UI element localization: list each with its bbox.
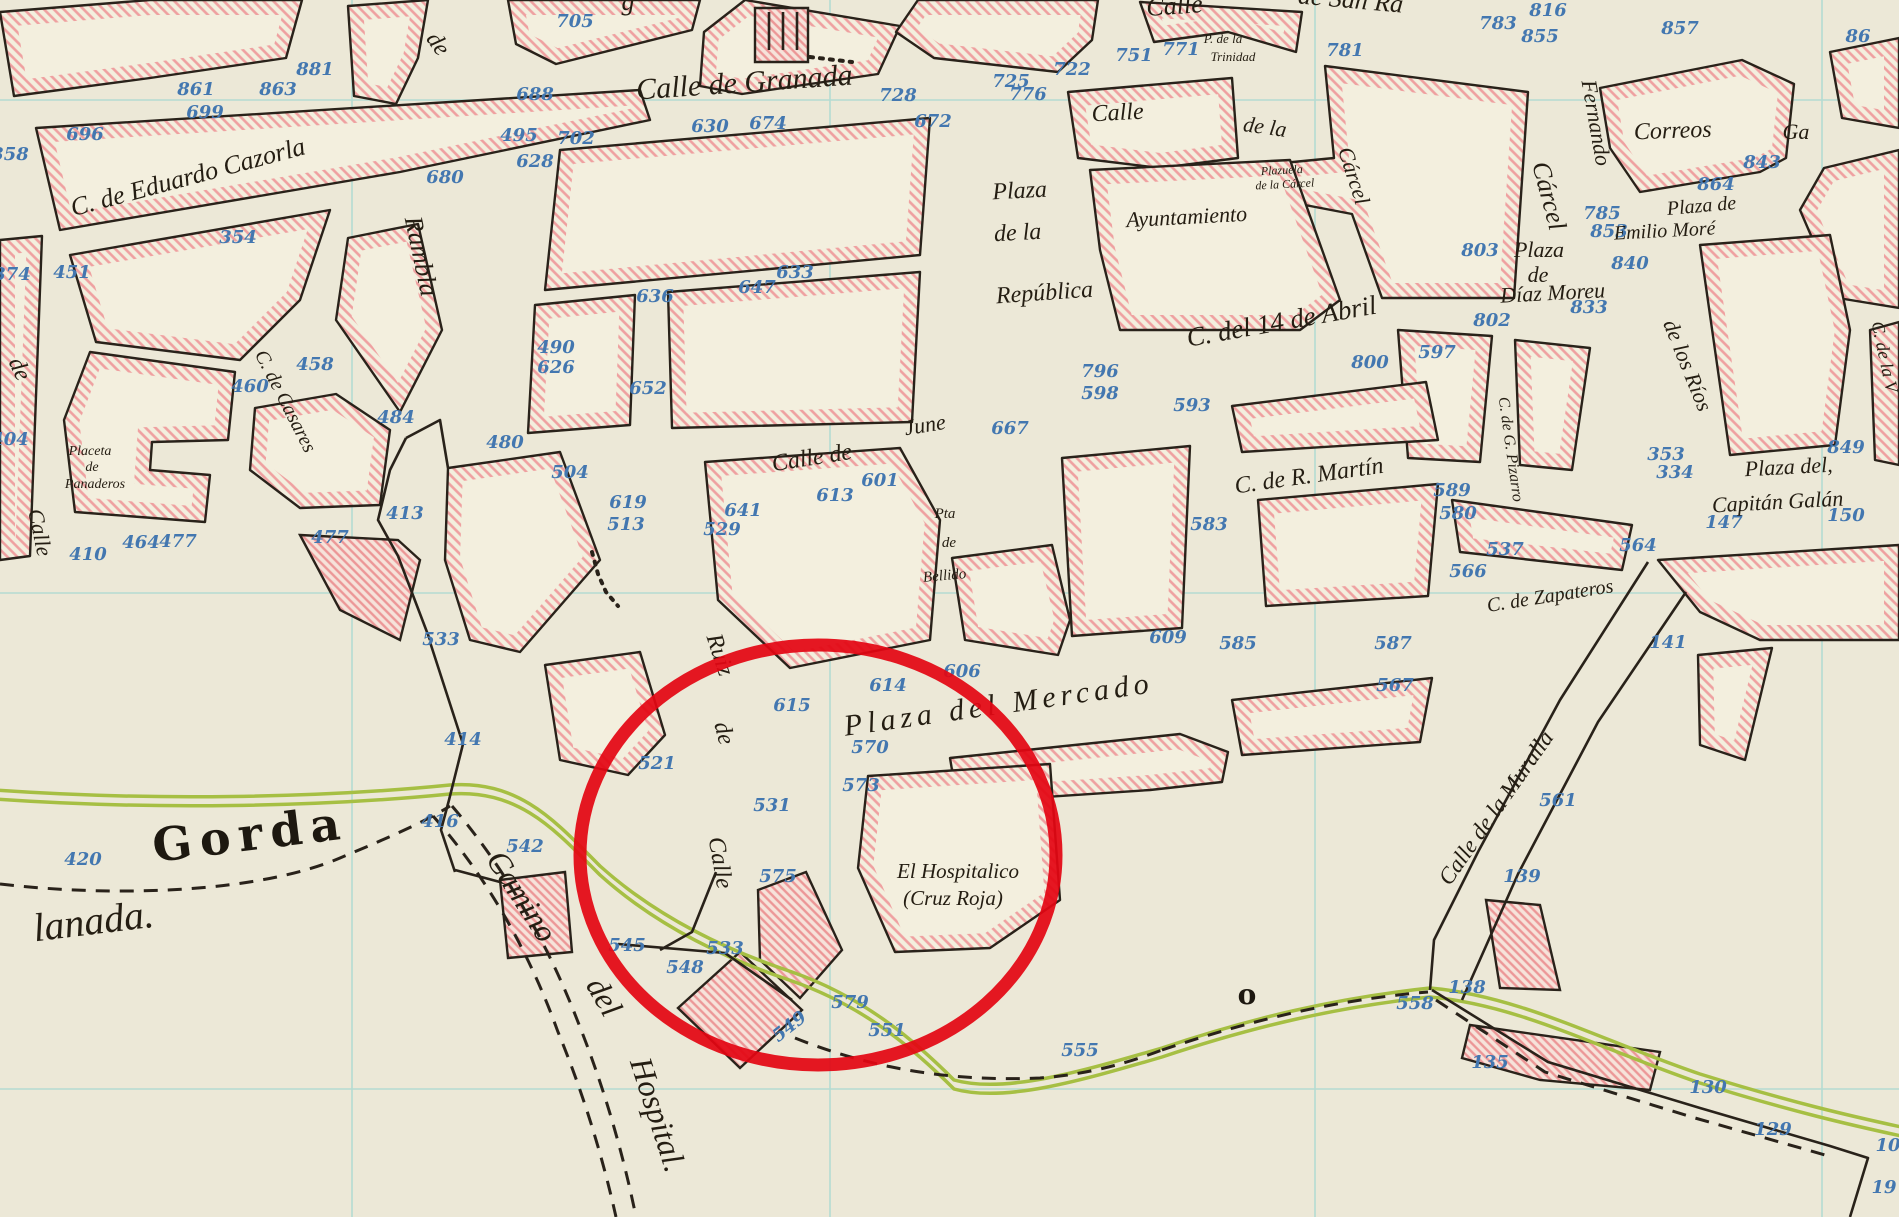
parcel-number: 358 (0, 144, 29, 165)
parcel-number: 404 (0, 429, 29, 450)
street-label: Plaza (1513, 237, 1564, 262)
parcel-number: 672 (914, 111, 952, 132)
parcel-number: 781 (1326, 40, 1364, 61)
parcel-number: 816 (1528, 0, 1567, 21)
parcel-number: 626 (537, 357, 575, 378)
parcel-number: 420 (64, 849, 102, 870)
street-label: Ga (1783, 119, 1810, 144)
parcel-number: 573 (842, 775, 880, 796)
parcel-number: 667 (991, 418, 1029, 439)
parcel-number: 796 (1081, 361, 1119, 382)
parcel-number: 529 (703, 519, 741, 540)
parcel-number: 86 (1844, 26, 1871, 47)
parcel-number: 451 (53, 262, 91, 283)
parcel-number: 575 (759, 866, 797, 887)
parcel-number: 533 (422, 629, 460, 650)
street-label: P. de la (1203, 31, 1243, 46)
building-block (755, 8, 808, 62)
street-label: (Cruz Roja) (903, 886, 1003, 910)
street-label: Trinidad (1211, 49, 1256, 64)
parcel-number: 728 (879, 85, 917, 106)
toponym-label: o (1238, 978, 1257, 1011)
parcel-number: 564 (1619, 535, 1657, 556)
parcel-number: 722 (1053, 59, 1091, 80)
parcel-number: 881 (295, 59, 334, 80)
parcel-number: 495 (500, 125, 538, 146)
parcel-number: 135 (1471, 1052, 1509, 1073)
parcel-number: 551 (868, 1020, 906, 1041)
parcel-number: 531 (753, 795, 791, 816)
parcel-number: 696 (66, 124, 104, 145)
map-canvas: 8616996968638813583744513544604584844044… (0, 0, 1899, 1217)
parcel-number: 464 (122, 532, 160, 553)
parcel-number: 513 (607, 514, 645, 535)
parcel-number: 702 (557, 128, 595, 149)
parcel-number: 647 (738, 277, 776, 298)
parcel-number: 783 (1479, 13, 1517, 34)
parcel-number: 533 (706, 938, 744, 959)
parcel-number: 628 (516, 151, 554, 172)
parcel-number: 680 (426, 167, 464, 188)
parcel-number: 776 (1009, 84, 1047, 105)
street-label: de la (993, 219, 1042, 247)
parcel-number: 414 (444, 729, 482, 750)
parcel-number: 504 (551, 462, 589, 483)
street-label: Pta (934, 506, 956, 522)
parcel-number: 771 (1162, 39, 1200, 60)
street-label: Correos (1633, 117, 1712, 146)
parcel-number: 601 (861, 470, 899, 491)
parcel-number: 458 (296, 354, 334, 375)
parcel-number: 614 (869, 675, 907, 696)
parcel-number: 802 (1472, 310, 1511, 331)
parcel-number: 477 (311, 527, 349, 548)
street-label: Calle (1091, 99, 1145, 128)
parcel-number: 803 (1460, 240, 1499, 261)
parcel-number: 688 (516, 84, 554, 105)
street-label: Placeta (68, 444, 112, 459)
parcel-number: 416 (421, 811, 459, 832)
parcel-number: 597 (1418, 342, 1456, 363)
parcel-number: 354 (219, 227, 257, 248)
parcel-number: 130 (1689, 1077, 1727, 1098)
parcel-number: 548 (666, 957, 704, 978)
parcel-number: 413 (386, 503, 424, 524)
parcel-number: 636 (636, 286, 674, 307)
parcel-number: 751 (1115, 45, 1153, 66)
parcel-number: 674 (749, 113, 787, 134)
parcel-number: 585 (1219, 633, 1257, 654)
parcel-number: 583 (1190, 514, 1228, 535)
parcel-number: 141 (1649, 632, 1687, 653)
parcel-number: 849 (1826, 437, 1865, 458)
parcel-number: 613 (816, 485, 854, 506)
parcel-number: 374 (0, 264, 31, 285)
parcel-number: 521 (638, 753, 676, 774)
parcel-number: 840 (1610, 253, 1649, 274)
parcel-number: 484 (377, 407, 415, 428)
parcel-number: 567 (1376, 675, 1414, 696)
parcel-number: 477 (159, 531, 197, 552)
street-label: Plaza (991, 177, 1048, 206)
street-label: Plaza del, (1743, 452, 1833, 482)
parcel-number: 410 (69, 544, 107, 565)
street-label: El Hospitalico (896, 859, 1019, 883)
parcel-number: 139 (1503, 866, 1541, 887)
parcel-number: 19 (1871, 1177, 1897, 1198)
parcel-number: 490 (537, 337, 575, 358)
parcel-number: 641 (724, 500, 762, 521)
parcel-number: 633 (776, 262, 814, 283)
parcel-number: 652 (629, 378, 667, 399)
parcel-number: 138 (1448, 977, 1486, 998)
parcel-number: 843 (1742, 152, 1781, 173)
parcel-number: 705 (556, 11, 594, 32)
parcel-number: 609 (1149, 627, 1187, 648)
historic-map-svg: 8616996968638813583744513544604584844044… (0, 0, 1899, 1217)
parcel-number: 555 (1061, 1040, 1099, 1061)
parcel-number: 857 (1660, 18, 1699, 39)
parcel-number: 598 (1081, 383, 1119, 404)
parcel-number: 537 (1486, 539, 1524, 560)
street-label: de (85, 460, 98, 475)
parcel-number: 558 (1396, 993, 1434, 1014)
parcel-number: 480 (486, 432, 524, 453)
parcel-number: 561 (1539, 790, 1577, 811)
street-label: de (942, 535, 957, 551)
parcel-number: 855 (1520, 26, 1559, 47)
parcel-number: 863 (258, 79, 297, 100)
parcel-number: 589 (1433, 480, 1471, 501)
parcel-number: 800 (1350, 352, 1389, 373)
street-label: g (622, 0, 635, 16)
parcel-number: 10 (1875, 1135, 1899, 1156)
street-label: Panaderos (64, 477, 126, 492)
parcel-number: 699 (186, 102, 224, 123)
parcel-number: 566 (1449, 561, 1487, 582)
parcel-number: 129 (1754, 1119, 1792, 1140)
parcel-number: 593 (1173, 395, 1211, 416)
parcel-number: 615 (773, 695, 811, 716)
parcel-number: 630 (691, 116, 729, 137)
parcel-number: 580 (1439, 503, 1477, 524)
parcel-number: 619 (609, 492, 647, 513)
parcel-number: 334 (1656, 462, 1694, 483)
parcel-number: 587 (1374, 633, 1412, 654)
parcel-number: 861 (176, 79, 215, 100)
parcel-number: 579 (831, 992, 869, 1013)
